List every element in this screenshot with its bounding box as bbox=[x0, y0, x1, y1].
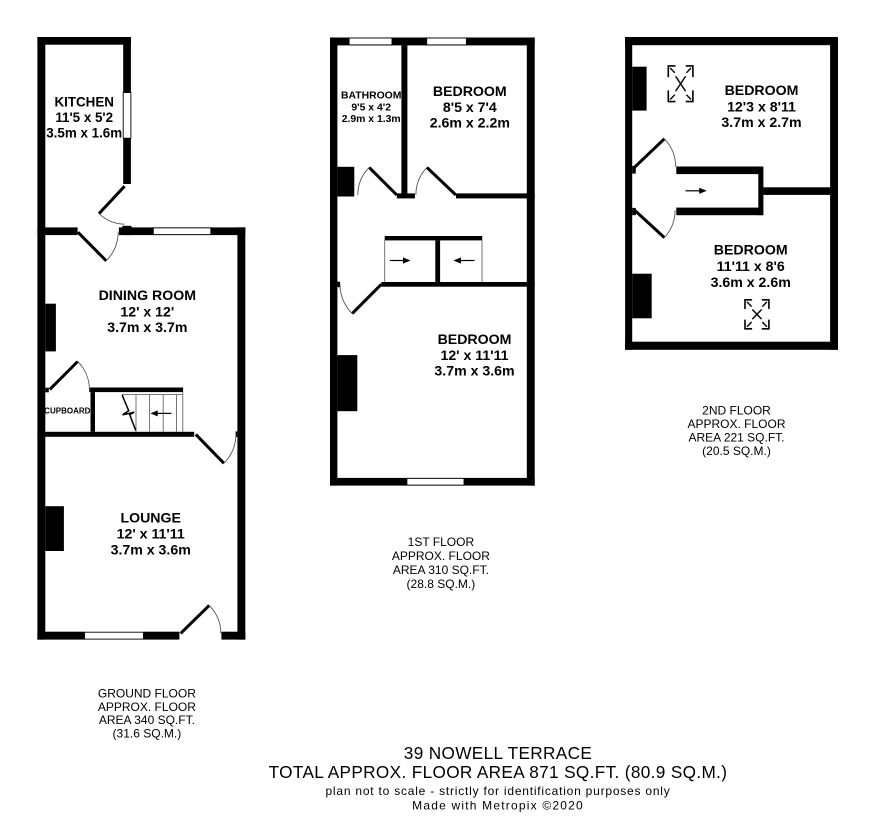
svg-text:12' x 11'11: 12' x 11'11 bbox=[440, 347, 508, 363]
svg-text:Made with Metropix ©2020: Made with Metropix ©2020 bbox=[412, 799, 584, 813]
svg-text:1ST FLOOR: 1ST FLOOR bbox=[408, 535, 475, 549]
svg-text:APPROX. FLOOR: APPROX. FLOOR bbox=[392, 549, 490, 563]
svg-text:8'5 x 7'4: 8'5 x 7'4 bbox=[443, 99, 497, 115]
svg-text:2.9m x 1.3m: 2.9m x 1.3m bbox=[342, 114, 401, 125]
svg-text:AREA 310 SQ.FT.: AREA 310 SQ.FT. bbox=[393, 563, 489, 577]
svg-text:KITCHEN: KITCHEN bbox=[54, 94, 114, 109]
svg-text:3.7m x 2.7m: 3.7m x 2.7m bbox=[721, 114, 801, 130]
svg-text:LOUNGE: LOUNGE bbox=[120, 510, 181, 526]
svg-text:BATHROOM: BATHROOM bbox=[341, 91, 401, 102]
svg-text:(20.5 SQ.M.): (20.5 SQ.M.) bbox=[702, 444, 771, 458]
svg-text:DINING ROOM: DINING ROOM bbox=[99, 287, 196, 303]
svg-text:3.7m x 3.6m: 3.7m x 3.6m bbox=[111, 542, 191, 558]
svg-text:12'3 x 8'11: 12'3 x 8'11 bbox=[727, 98, 796, 114]
svg-text:GROUND FLOOR: GROUND FLOOR bbox=[98, 687, 196, 701]
svg-text:BEDROOM: BEDROOM bbox=[725, 82, 799, 98]
svg-text:APPROX. FLOOR: APPROX. FLOOR bbox=[98, 700, 196, 714]
svg-text:3.7m x 3.7m: 3.7m x 3.7m bbox=[107, 319, 187, 335]
svg-text:9'5 x 4'2: 9'5 x 4'2 bbox=[351, 102, 391, 113]
svg-text:39 NOWELL TERRACE: 39 NOWELL TERRACE bbox=[404, 743, 592, 763]
svg-text:AREA 340 SQ.FT.: AREA 340 SQ.FT. bbox=[99, 713, 195, 727]
svg-text:AREA 221 SQ.FT.: AREA 221 SQ.FT. bbox=[688, 431, 784, 445]
svg-text:12' x 11'11: 12' x 11'11 bbox=[117, 525, 185, 541]
svg-text:(31.6 SQ.M.): (31.6 SQ.M.) bbox=[113, 727, 182, 741]
svg-text:2ND FLOOR: 2ND FLOOR bbox=[702, 404, 771, 418]
svg-text:BEDROOM: BEDROOM bbox=[433, 83, 507, 99]
svg-text:BEDROOM: BEDROOM bbox=[714, 242, 788, 258]
svg-text:CUPBOARD: CUPBOARD bbox=[44, 407, 90, 416]
svg-text:BEDROOM: BEDROOM bbox=[438, 331, 512, 347]
svg-text:3.6m x 2.6m: 3.6m x 2.6m bbox=[711, 274, 791, 290]
svg-text:12' x 12': 12' x 12' bbox=[120, 303, 174, 319]
svg-text:11'5 x 5'2: 11'5 x 5'2 bbox=[55, 110, 113, 125]
svg-text:(28.8 SQ.M.): (28.8 SQ.M.) bbox=[407, 577, 476, 591]
svg-text:3.5m x 1.6m: 3.5m x 1.6m bbox=[46, 125, 122, 140]
svg-text:APPROX. FLOOR: APPROX. FLOOR bbox=[687, 417, 785, 431]
svg-text:plan not to scale - strictly f: plan not to scale - strictly for identif… bbox=[325, 784, 670, 798]
svg-text:3.7m x 3.6m: 3.7m x 3.6m bbox=[434, 363, 514, 379]
svg-text:TOTAL APPROX. FLOOR AREA 871 S: TOTAL APPROX. FLOOR AREA 871 SQ.FT. (80.… bbox=[269, 762, 728, 782]
svg-text:11'11 x 8'6: 11'11 x 8'6 bbox=[717, 258, 785, 274]
svg-text:2.6m x 2.2m: 2.6m x 2.2m bbox=[430, 114, 510, 130]
